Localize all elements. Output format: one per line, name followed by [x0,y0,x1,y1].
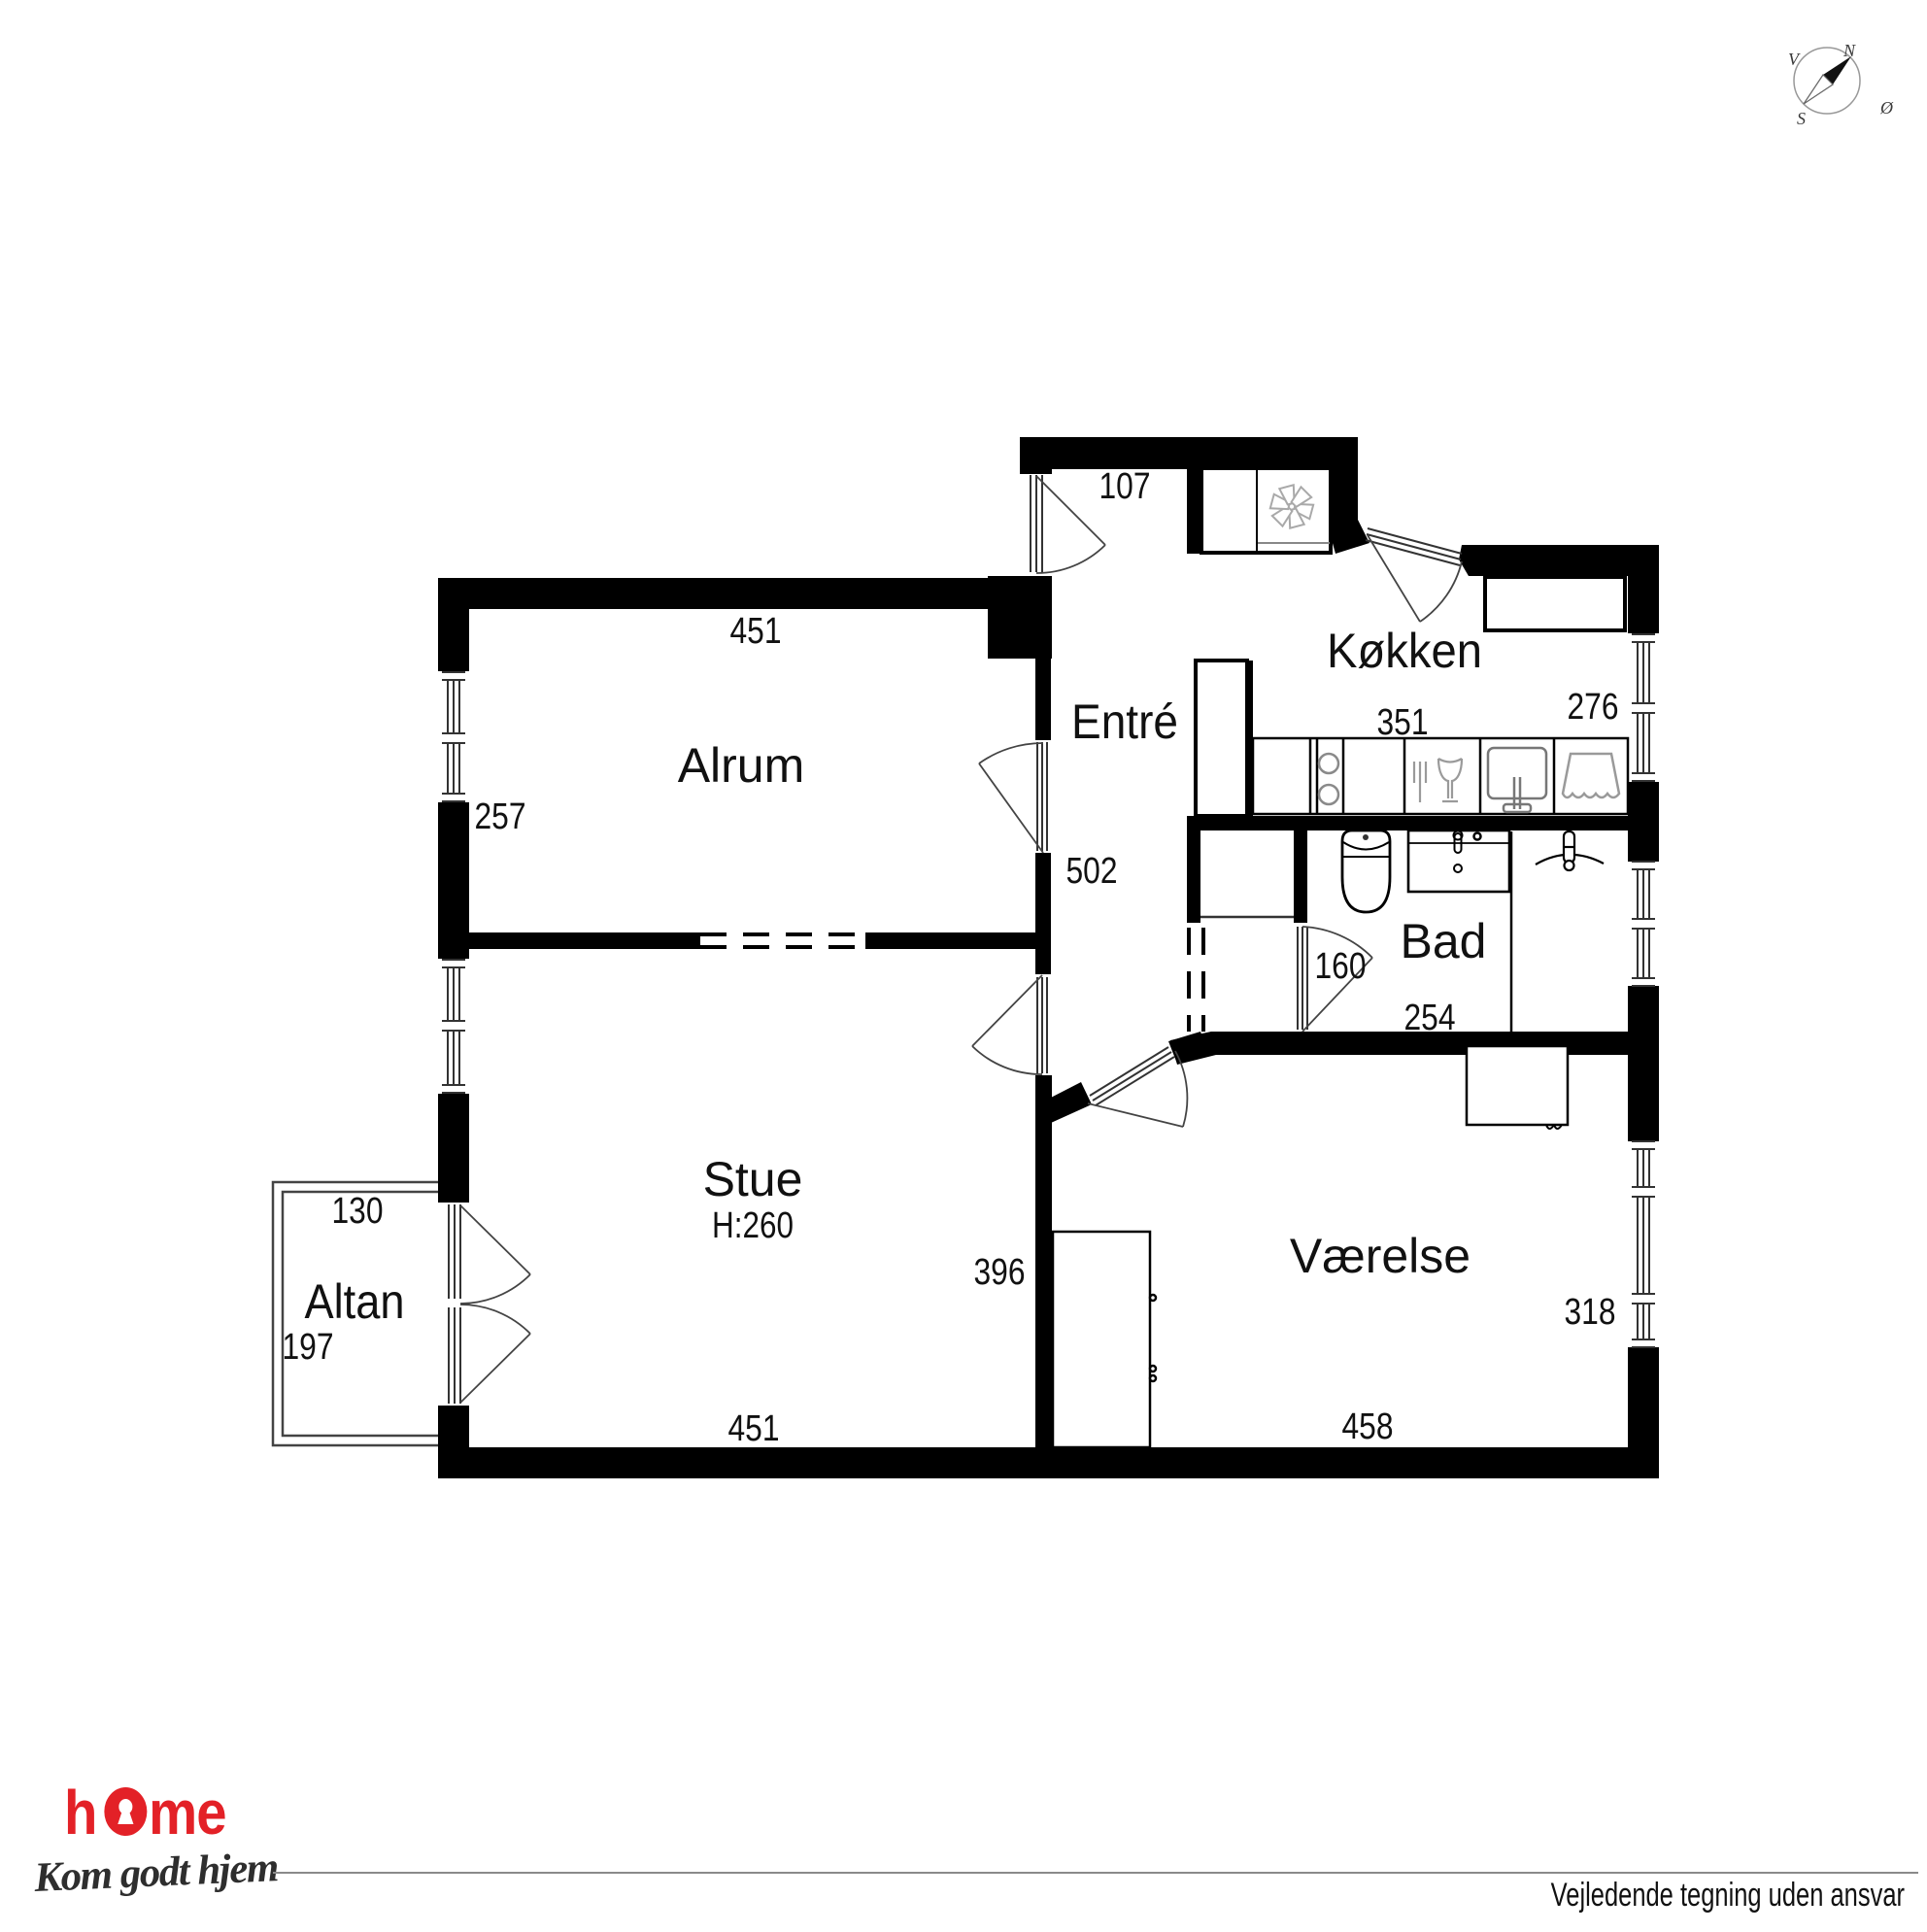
svg-text:Køkken: Køkken [1327,624,1482,678]
svg-text:me: me [149,1778,226,1847]
svg-text:Alrum: Alrum [678,738,805,793]
svg-text:160: 160 [1315,946,1367,987]
svg-text:Ø: Ø [1879,98,1894,118]
svg-text:Vejledende tegning uden ansvar: Vejledende tegning uden ansvar [1551,1878,1905,1914]
svg-text:451: 451 [730,611,782,652]
svg-text:197: 197 [283,1327,334,1368]
svg-text:N: N [1842,41,1856,60]
svg-text:276: 276 [1568,687,1619,728]
svg-text:Bad: Bad [1401,914,1487,968]
svg-text:396: 396 [974,1252,1026,1293]
svg-text:502: 502 [1066,851,1118,892]
svg-text:451: 451 [728,1408,780,1449]
svg-text:h: h [64,1778,97,1847]
svg-text:Værelse: Værelse [1290,1229,1471,1283]
svg-text:254: 254 [1404,998,1456,1038]
svg-text:Entré: Entré [1071,695,1178,749]
svg-text:Altan: Altan [305,1274,405,1329]
svg-text:Stue: Stue [703,1152,803,1206]
svg-text:130: 130 [332,1191,384,1232]
svg-text:H:260: H:260 [712,1205,794,1246]
svg-text:458: 458 [1342,1407,1394,1447]
svg-text:318: 318 [1565,1292,1616,1333]
svg-text:257: 257 [475,797,526,837]
svg-text:S: S [1797,109,1806,128]
svg-text:351: 351 [1377,702,1429,743]
svg-text:107: 107 [1099,466,1151,507]
